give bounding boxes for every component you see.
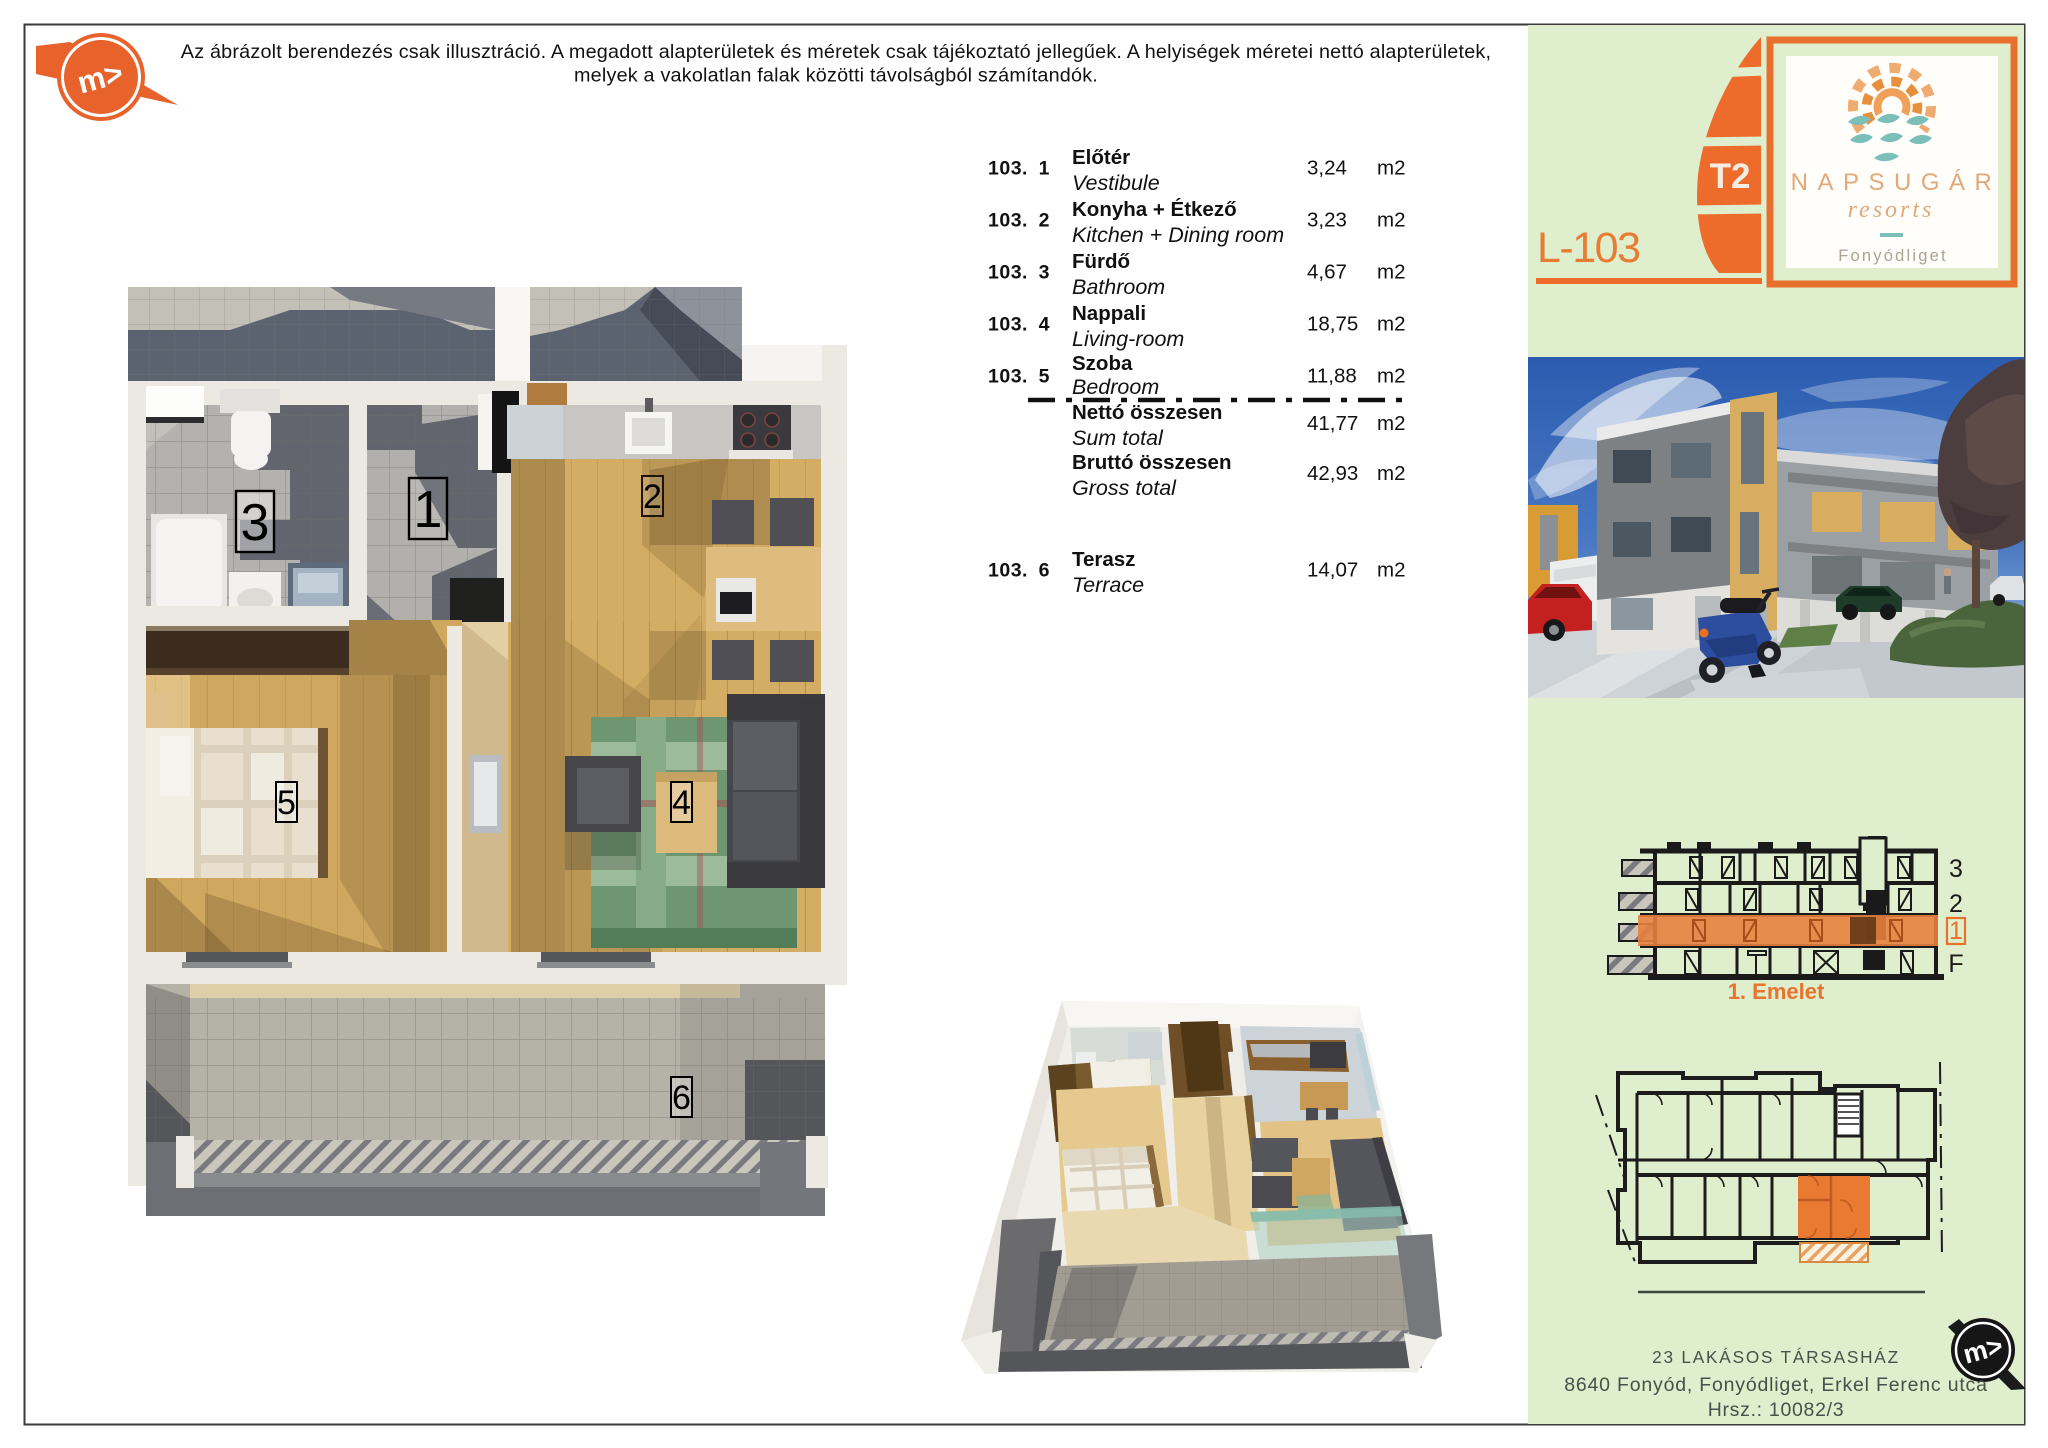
svg-text:5: 5 [277, 784, 296, 822]
svg-text:Living-room: Living-room [1072, 327, 1184, 351]
svg-text:Az ábrázolt berendezés csak il: Az ábrázolt berendezés csak illusztráció… [181, 41, 1491, 63]
svg-text:23 LAKÁSOS TÁRSASHÁZ: 23 LAKÁSOS TÁRSASHÁZ [1652, 1347, 1900, 1367]
svg-text:103.: 103. [988, 366, 1028, 388]
svg-text:Konyha + Étkező: Konyha + Étkező [1072, 198, 1237, 221]
svg-text:Terasz: Terasz [1072, 548, 1135, 571]
svg-text:5: 5 [1039, 366, 1050, 388]
svg-text:2: 2 [643, 478, 662, 516]
svg-text:NAPSUGÁR: NAPSUGÁR [1791, 169, 2002, 196]
svg-text:3,24: 3,24 [1307, 157, 1347, 180]
svg-text:Gross total: Gross total [1072, 476, 1177, 500]
svg-text:4: 4 [1039, 314, 1050, 336]
svg-text:m2: m2 [1377, 412, 1405, 435]
svg-text:42,93: 42,93 [1307, 462, 1358, 485]
svg-text:6: 6 [672, 1079, 691, 1117]
svg-text:Szoba: Szoba [1072, 352, 1133, 375]
svg-text:103.: 103. [988, 560, 1028, 582]
svg-text:11,88: 11,88 [1307, 365, 1357, 388]
svg-text:resorts: resorts [1848, 197, 1935, 223]
svg-text:melyek a vakolatlan falak közö: melyek a vakolatlan falak közötti távols… [574, 65, 1098, 87]
svg-text:3: 3 [1039, 262, 1050, 284]
svg-text:Fürdő: Fürdő [1072, 250, 1130, 273]
svg-text:Nappali: Nappali [1072, 302, 1146, 325]
svg-text:1: 1 [1949, 917, 1963, 945]
svg-text:m2: m2 [1377, 261, 1405, 284]
svg-text:6: 6 [1039, 560, 1050, 582]
svg-text:103.: 103. [988, 210, 1028, 232]
svg-text:Sum total: Sum total [1072, 426, 1164, 450]
svg-text:4,67: 4,67 [1307, 261, 1347, 284]
svg-text:m2: m2 [1377, 559, 1405, 582]
svg-text:m2: m2 [1377, 462, 1405, 485]
svg-text:Bathroom: Bathroom [1072, 275, 1165, 299]
svg-text:Kitchen + Dining room: Kitchen + Dining room [1072, 223, 1284, 247]
svg-text:3,23: 3,23 [1307, 209, 1347, 232]
svg-text:14,07: 14,07 [1307, 559, 1358, 582]
svg-text:T2: T2 [1710, 157, 1751, 196]
svg-text:103.: 103. [988, 158, 1028, 180]
svg-text:Bruttó összesen: Bruttó összesen [1072, 451, 1231, 474]
svg-text:8640 Fonyód, Fonyódliget, Erke: 8640 Fonyód, Fonyódliget, Erkel Ferenc u… [1564, 1374, 1988, 1396]
svg-text:m2: m2 [1377, 313, 1405, 336]
svg-text:Bedroom: Bedroom [1072, 375, 1159, 399]
svg-text:Előtér: Előtér [1072, 146, 1130, 169]
svg-text:L-103: L-103 [1537, 224, 1640, 272]
svg-text:Vestibule: Vestibule [1072, 171, 1160, 195]
svg-text:41,77: 41,77 [1307, 412, 1358, 435]
svg-text:1. Emelet: 1. Emelet [1728, 979, 1825, 1004]
svg-text:103.: 103. [988, 314, 1028, 336]
svg-text:2: 2 [1039, 210, 1050, 232]
svg-text:Fonyódliget: Fonyódliget [1838, 247, 1948, 265]
svg-text:m2: m2 [1377, 157, 1405, 180]
svg-text:F: F [1948, 950, 1963, 978]
svg-text:3: 3 [1949, 855, 1963, 883]
svg-text:Terrace: Terrace [1072, 573, 1144, 597]
svg-text:3: 3 [241, 494, 270, 552]
svg-text:Hrsz.: 10082/3: Hrsz.: 10082/3 [1708, 1399, 1845, 1421]
svg-text:m2: m2 [1377, 209, 1405, 232]
svg-text:2: 2 [1949, 890, 1963, 918]
svg-text:Nettó összesen: Nettó összesen [1072, 401, 1222, 424]
svg-text:4: 4 [672, 784, 691, 822]
svg-text:1: 1 [1039, 158, 1050, 180]
svg-text:1: 1 [414, 481, 443, 539]
svg-text:18,75: 18,75 [1307, 313, 1358, 336]
svg-text:103.: 103. [988, 262, 1028, 284]
svg-text:m2: m2 [1377, 365, 1405, 388]
